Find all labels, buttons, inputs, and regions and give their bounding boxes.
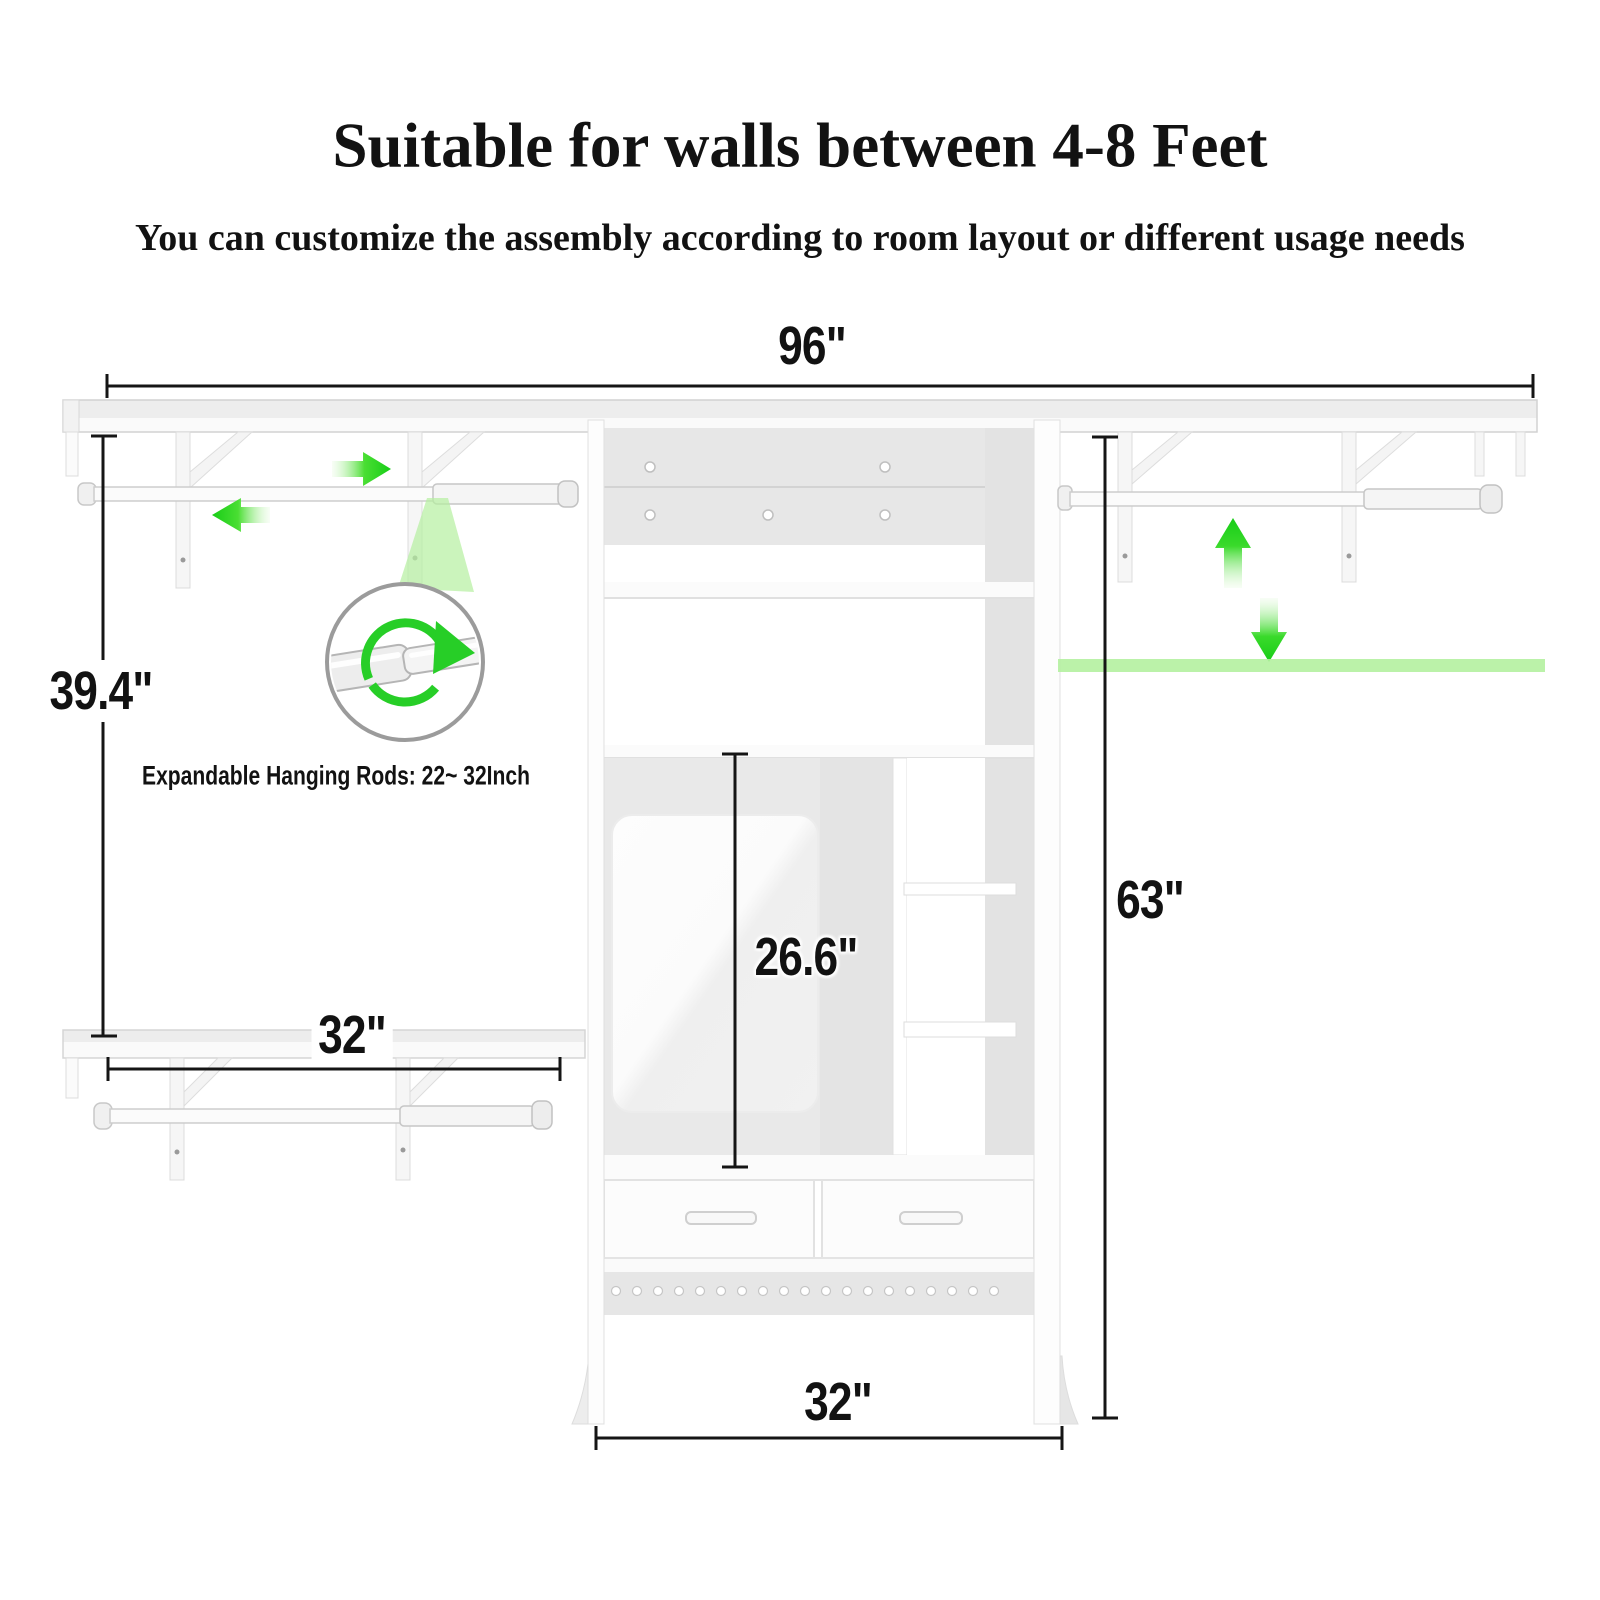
move-down-arrow-icon: [1251, 598, 1287, 662]
page-title: Suitable for walls between 4-8 Feet: [333, 110, 1268, 183]
dim-tower-width-label: 32": [804, 1371, 872, 1433]
top-shelf: [63, 400, 1537, 432]
drawer-right: [822, 1180, 1034, 1258]
dim-left-height-label: 39.4": [43, 660, 159, 722]
left-hanging-rod: [78, 481, 578, 507]
product-diagram: Suitable for walls between 4-8 Feet You …: [0, 0, 1600, 1600]
dim-tower-height-label: 63": [1116, 869, 1184, 931]
right-foot: [1060, 1356, 1078, 1424]
dim-line-tower-height: [1092, 437, 1118, 1418]
move-up-arrow-icon: [1215, 518, 1251, 588]
hook-panel: [604, 428, 985, 545]
dim-left-rod-label: 32": [312, 1004, 393, 1066]
dim-line-left-height: [91, 436, 117, 1036]
adjustable-shelf-highlight: [1058, 659, 1545, 672]
drawer-left: [604, 1180, 814, 1258]
page-subtitle: You can customize the assembly according…: [135, 216, 1465, 260]
right-wall-section: [1058, 432, 1545, 672]
expand-arrow-right-icon: [332, 452, 391, 486]
pegboard-strip: [604, 1272, 1034, 1315]
drawer-handle: [686, 1212, 756, 1224]
detail-callout-circle: [313, 584, 505, 740]
dim-line-total-width: [107, 374, 1533, 398]
left-foot: [572, 1364, 588, 1424]
dim-mirror-height-label: 26.6": [754, 926, 857, 988]
drawer-handle: [900, 1212, 962, 1224]
wardrobe-illustration: [63, 400, 1545, 1424]
expand-arrow-left-icon: [212, 498, 270, 532]
dim-total-width-label: 96": [778, 315, 846, 377]
expandable-rods-note: Expandable Hanging Rods: 22~ 32Inch: [142, 761, 530, 792]
center-tower: [572, 420, 1078, 1424]
lower-hanging-rod: [94, 1101, 552, 1129]
left-wall-section: [66, 432, 578, 588]
